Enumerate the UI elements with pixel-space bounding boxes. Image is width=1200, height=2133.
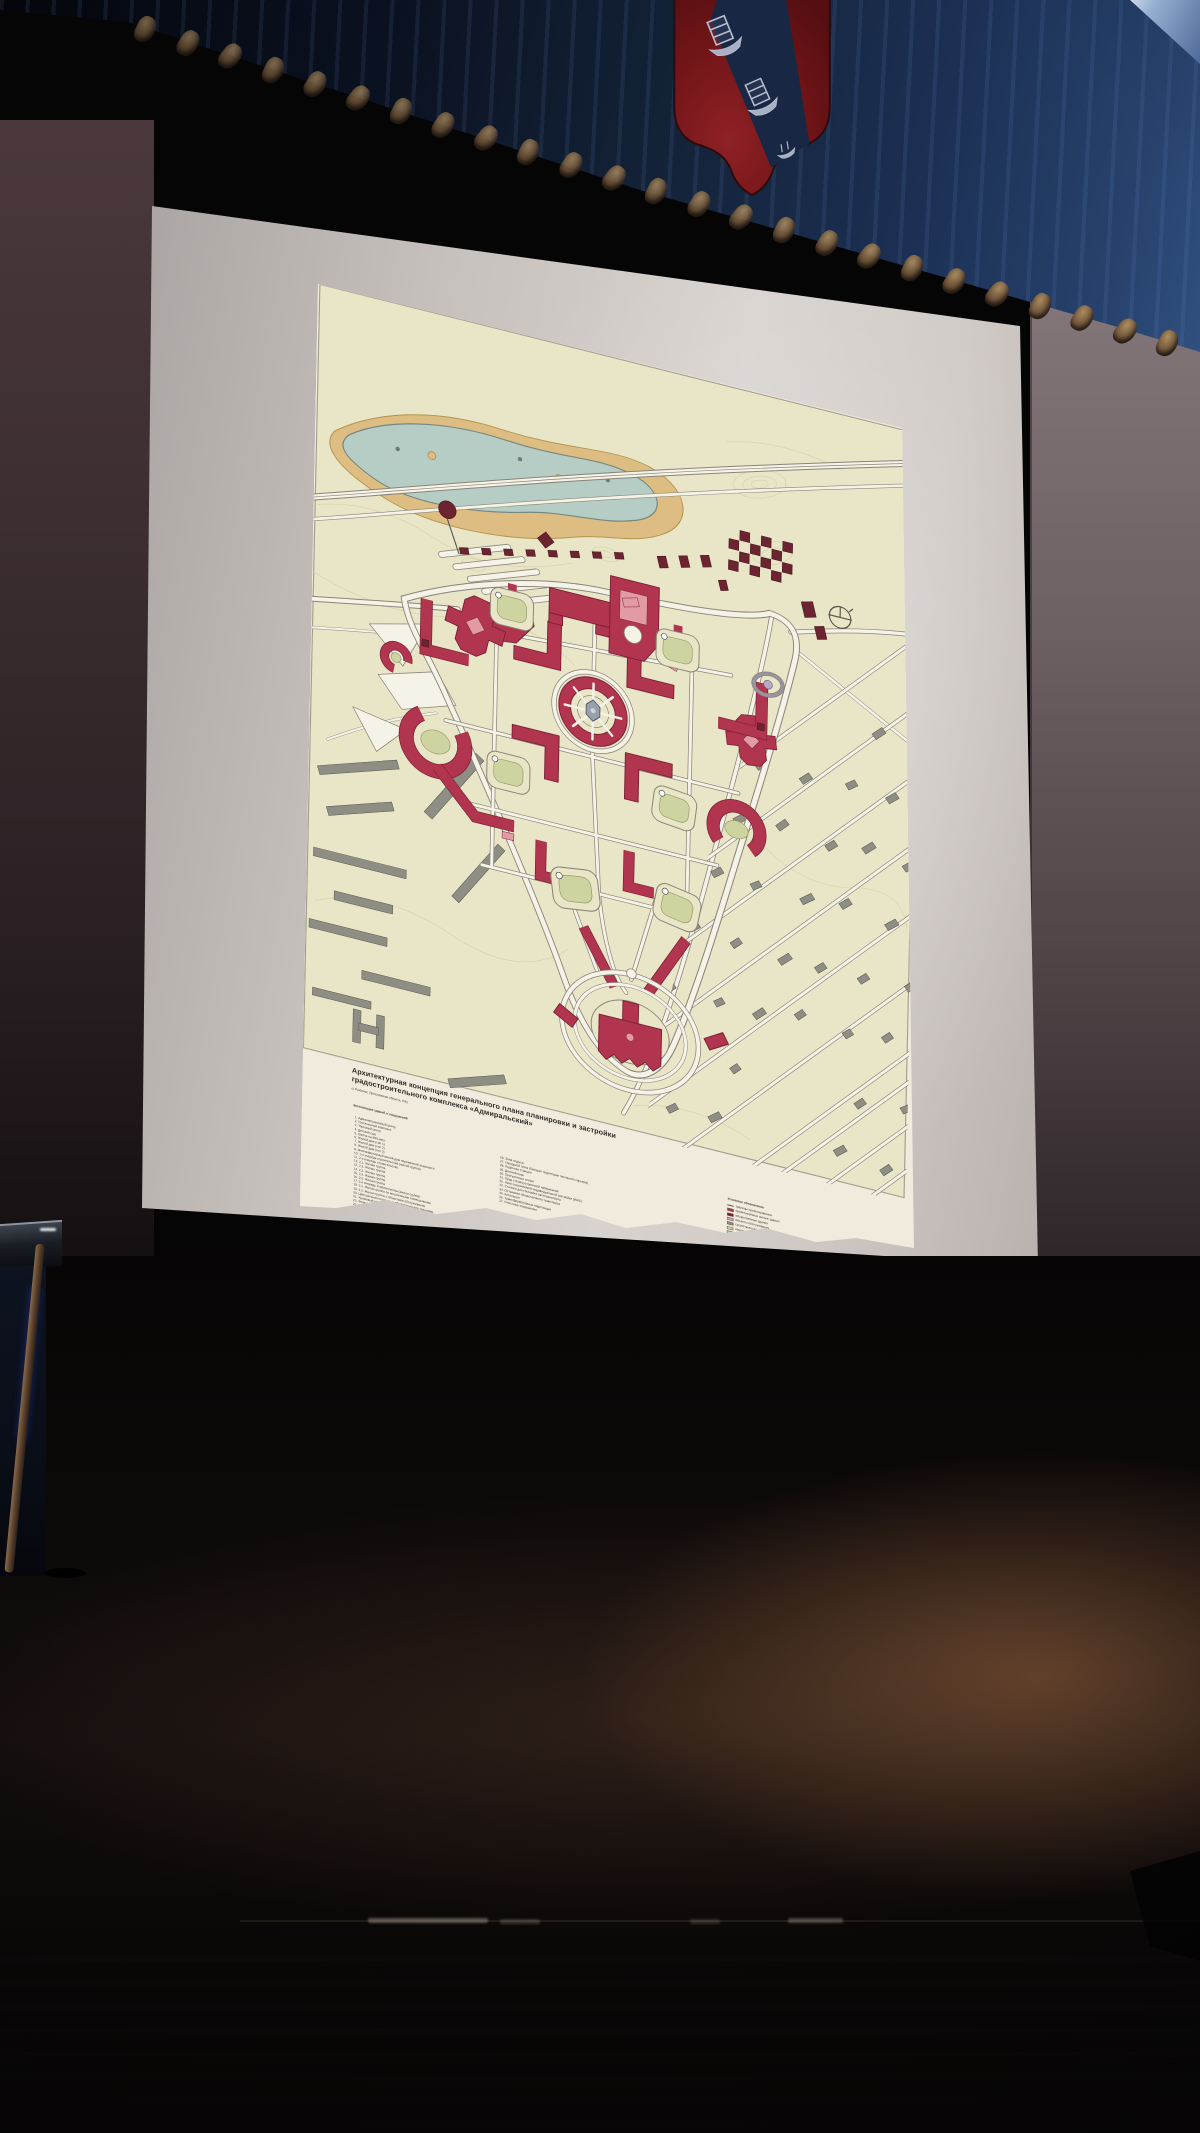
- stand-glint: [40, 1228, 56, 1231]
- stage-edge-highlight: [368, 1918, 488, 1923]
- site-plan-map: [301, 282, 922, 1203]
- stand-foot-shadow: [44, 1568, 86, 1578]
- stage-edge-highlight: [500, 1919, 540, 1924]
- floor-shadow: [1120, 1851, 1200, 1961]
- floor-texture: [0, 1956, 1200, 2133]
- stage-edge-highlight: [788, 1918, 843, 1923]
- poster-sheet: Архитектурная концепция генерального пла…: [296, 280, 920, 1254]
- wall-right: [1030, 290, 1200, 1350]
- stage-edge-highlight: [690, 1919, 720, 1924]
- wall-left: [0, 120, 154, 1270]
- stage-floor: [0, 1256, 1200, 2133]
- coat-of-arms: [666, 0, 838, 196]
- auditorium-photo: Архитектурная концепция генерального пла…: [0, 0, 1200, 2133]
